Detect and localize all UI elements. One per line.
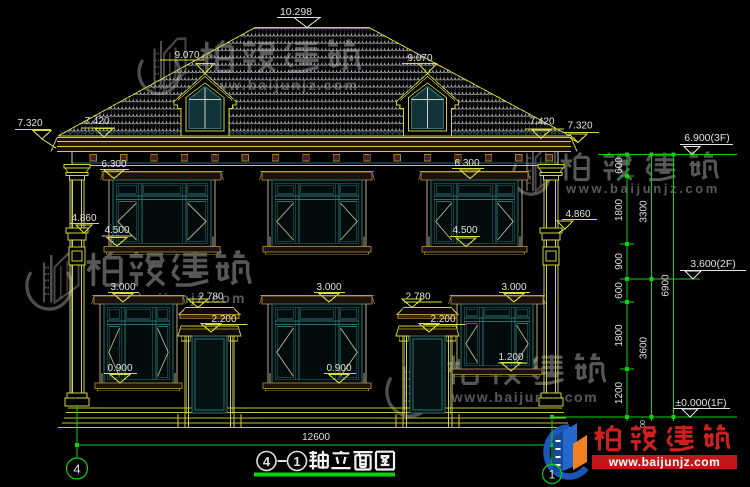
svg-text:7.420: 7.420 — [84, 116, 109, 127]
svg-text:4.860: 4.860 — [565, 209, 590, 220]
svg-text:900: 900 — [614, 253, 625, 270]
svg-text:2.780: 2.780 — [198, 292, 223, 303]
svg-text:±0.000(1F): ±0.000(1F) — [675, 397, 726, 409]
svg-text:3.000: 3.000 — [110, 282, 135, 293]
svg-text:4.500: 4.500 — [452, 225, 477, 236]
svg-text:1200: 1200 — [614, 381, 625, 404]
svg-text:4.860: 4.860 — [71, 213, 96, 224]
svg-text:www.baijunjz.com: www.baijunjz.com — [451, 389, 598, 405]
svg-text:3.000: 3.000 — [316, 282, 341, 293]
svg-text:1.200: 1.200 — [498, 352, 523, 363]
svg-text:7.320: 7.320 — [17, 118, 42, 129]
svg-text:0.900: 0.900 — [326, 363, 351, 374]
svg-text:9.070: 9.070 — [407, 53, 432, 64]
svg-text:www.baijunjz.com: www.baijunjz.com — [565, 181, 720, 196]
svg-text:1800: 1800 — [614, 198, 625, 221]
svg-text:7.320: 7.320 — [567, 121, 592, 132]
svg-text:10.298: 10.298 — [280, 6, 312, 18]
svg-text:9.070: 9.070 — [174, 50, 199, 61]
svg-text:www.baijunjz.com: www.baijunjz.com — [608, 455, 721, 469]
svg-text:6.300: 6.300 — [101, 159, 126, 170]
svg-text:1: 1 — [549, 468, 556, 482]
svg-text:1800: 1800 — [614, 324, 625, 347]
svg-text:2.780: 2.780 — [405, 292, 430, 303]
svg-text:6900: 6900 — [661, 274, 672, 297]
svg-text:3300: 3300 — [639, 200, 650, 223]
svg-text:7.420: 7.420 — [529, 117, 554, 128]
svg-text:6.300: 6.300 — [454, 158, 479, 169]
svg-text:3600: 3600 — [639, 336, 650, 359]
svg-text:600: 600 — [614, 282, 625, 299]
svg-text:12600: 12600 — [302, 432, 330, 443]
svg-text:1: 1 — [293, 454, 300, 469]
svg-text:3.600(2F): 3.600(2F) — [690, 258, 736, 270]
svg-text:3.000: 3.000 — [501, 282, 526, 293]
svg-text:4: 4 — [263, 454, 271, 469]
svg-text:4: 4 — [73, 462, 80, 477]
svg-text:600: 600 — [614, 157, 625, 174]
svg-text:0.900: 0.900 — [107, 363, 132, 374]
svg-text:4.500: 4.500 — [104, 225, 129, 236]
svg-text:6.900(3F): 6.900(3F) — [684, 132, 730, 144]
